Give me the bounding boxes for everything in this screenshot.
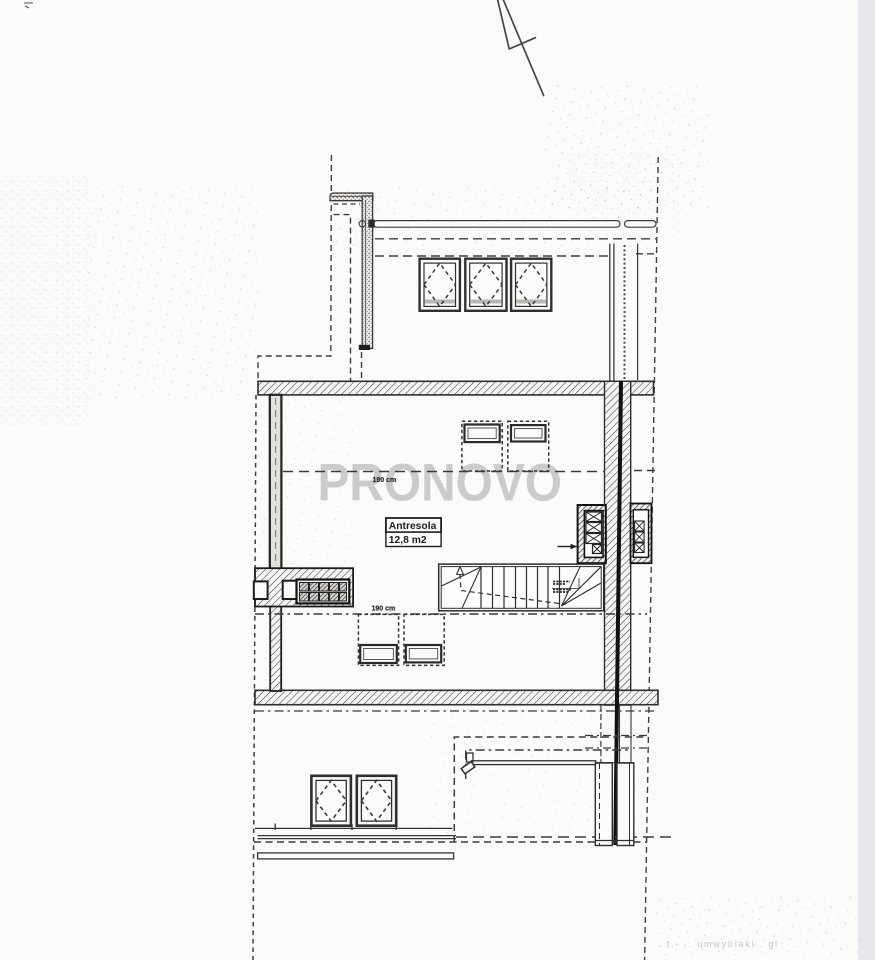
svg-text:Antresola: Antresola [389,521,437,532]
svg-text:. t.- .. umwybiaki . gl: . t.- .. umwybiaki . gl [658,939,779,949]
svg-text:PRONOVO: PRONOVO [318,454,563,513]
svg-text:190 cm: 190 cm [373,477,397,484]
svg-text:190 cm: 190 cm [372,606,396,613]
svg-text:12,8 m2: 12,8 m2 [389,535,427,546]
